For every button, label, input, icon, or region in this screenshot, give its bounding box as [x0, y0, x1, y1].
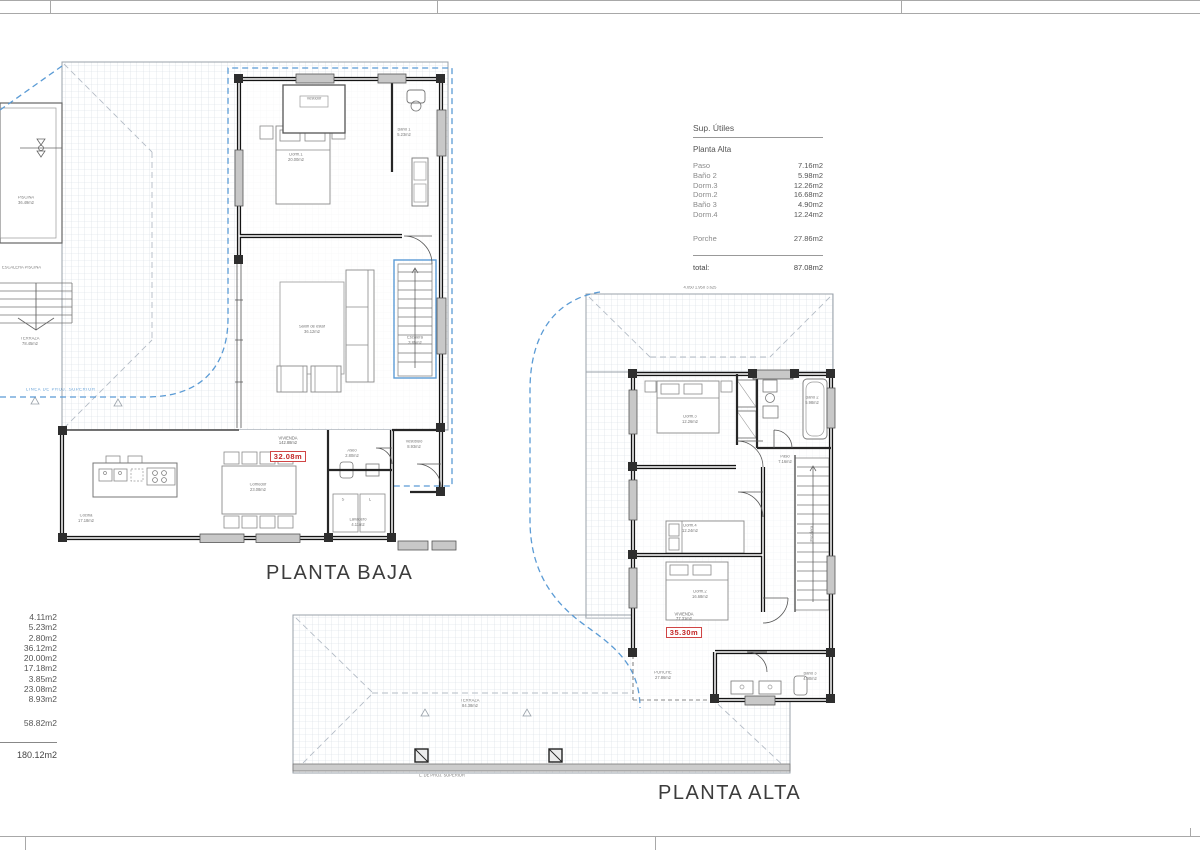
room-label-dorm1: Dorm.120.00m2	[276, 153, 317, 163]
room-label-dorm3: Dorm.312.26m2	[670, 415, 711, 425]
room-label-bano2: Baño 25.98m2	[794, 396, 829, 406]
dimension-string-alta: 4.050 1.950 3.625	[659, 286, 741, 291]
stairs-baja	[394, 260, 436, 378]
sup-utiles-row: Dorm.216.68m2	[693, 190, 823, 200]
height-badge-alta: 35.30m	[666, 627, 702, 638]
sup-utiles-row: Paso7.16m2	[693, 161, 823, 171]
sup-utiles-total-row: total: 87.08m2	[693, 255, 823, 272]
baja-area-value: 20.00m2	[0, 653, 57, 663]
pool	[0, 103, 72, 330]
room-label-aseo: Aseo2.80m2	[337, 449, 367, 459]
room-label-cocina: Cocina17.18m2	[66, 514, 107, 524]
room-label-paso: Paso7.16m2	[766, 455, 804, 465]
baja-areas-subtotal: 58.82m2	[0, 718, 57, 728]
sup-utiles-panel: Sup. Útiles Planta Alta Paso7.16m2Baño 2…	[693, 123, 823, 272]
vivienda-label-baja: VIVIENDA142.88m2 32.08m	[258, 432, 318, 464]
baja-area-value: 36.12m2	[0, 643, 57, 653]
baja-areas-values: 4.11m25.23m22.80m236.12m220.00m217.18m23…	[0, 612, 57, 705]
sup-utiles-row: Baño 34.90m2	[693, 200, 823, 210]
baja-areas-list: 4.11m25.23m22.80m236.12m220.00m217.18m23…	[0, 612, 57, 760]
sup-utiles-row: Dorm.412.24m2	[693, 210, 823, 220]
appliance-letter-s: S	[340, 498, 347, 503]
room-label-porche: PORCHE27.86m2	[643, 671, 684, 681]
room-label-vestidor: Vestidor	[293, 97, 335, 102]
baja-area-value: 17.18m2	[0, 663, 57, 673]
baja-area-value: 8.93m2	[0, 694, 57, 704]
room-label-vestibulo: Vestíbulo8.93m2	[395, 440, 433, 450]
room-label-dorm4: Dorm.412.24m2	[670, 524, 711, 534]
room-label-bano1: Baño 15.23m2	[385, 128, 423, 138]
sup-utiles-row: Baño 25.98m2	[693, 171, 823, 181]
room-label-escalera-alta: Escalera	[810, 520, 815, 547]
projection-line-label: LINEA DE PROJ. SUPERIOR	[26, 388, 121, 393]
planta-alta-title: PLANTA ALTA	[658, 782, 801, 805]
room-label-salon: Salón de estar36.12m2	[292, 325, 333, 335]
projection-note-alta: L. DE PROJ. SUPERIOR	[408, 774, 476, 779]
room-label-terraza-baja: TERRAZA78.45m2	[10, 337, 51, 347]
room-label-lavadero: Lavadero4.11m2	[339, 518, 377, 528]
closet-vestidor	[283, 85, 345, 133]
planta-baja-title: PLANTA BAJA	[266, 562, 413, 585]
sofa	[346, 270, 374, 382]
sup-utiles-row: Dorm.312.26m2	[693, 181, 823, 191]
sup-utiles-title: Sup. Útiles	[693, 123, 823, 138]
plan-linework	[0, 0, 1200, 850]
room-label-comedor: Comedor23.08m2	[238, 483, 279, 493]
drawing-sheet: Sup. Útiles Planta Alta Paso7.16m2Baño 2…	[0, 0, 1200, 850]
baja-areas-total: 180.12m2	[0, 743, 57, 760]
sup-utiles-porche-row: Porche 27.86m2	[693, 234, 823, 244]
sup-utiles-subtitle: Planta Alta	[693, 145, 823, 154]
room-label-terraza-alta: TERRAZA84.38m2	[450, 699, 491, 709]
room-label-bano3: Baño 34.90m2	[791, 672, 829, 682]
appliance-letter-l: L	[367, 498, 374, 503]
baja-area-value: 23.08m2	[0, 684, 57, 694]
baja-area-value: 5.23m2	[0, 622, 57, 632]
room-label-dorm2: Dorm.216.68m2	[680, 590, 721, 600]
vivienda-label-alta: VIVIENDA77.31m2 35.30m	[652, 608, 716, 640]
room-label-escalera-baja: Escalera3.85m2	[401, 336, 430, 346]
baja-area-value: 3.85m2	[0, 674, 57, 684]
room-label-piscina: PISCINA36.49m2	[8, 196, 43, 206]
baja-area-value: 4.11m2	[0, 612, 57, 622]
height-badge-baja: 32.08m	[270, 451, 306, 462]
sup-utiles-rows: Paso7.16m2Baño 25.98m2Dorm.312.26m2Dorm.…	[693, 161, 823, 220]
pool-steps-note: ESCALERA PISCINA	[2, 266, 51, 271]
baja-area-value: 2.80m2	[0, 633, 57, 643]
